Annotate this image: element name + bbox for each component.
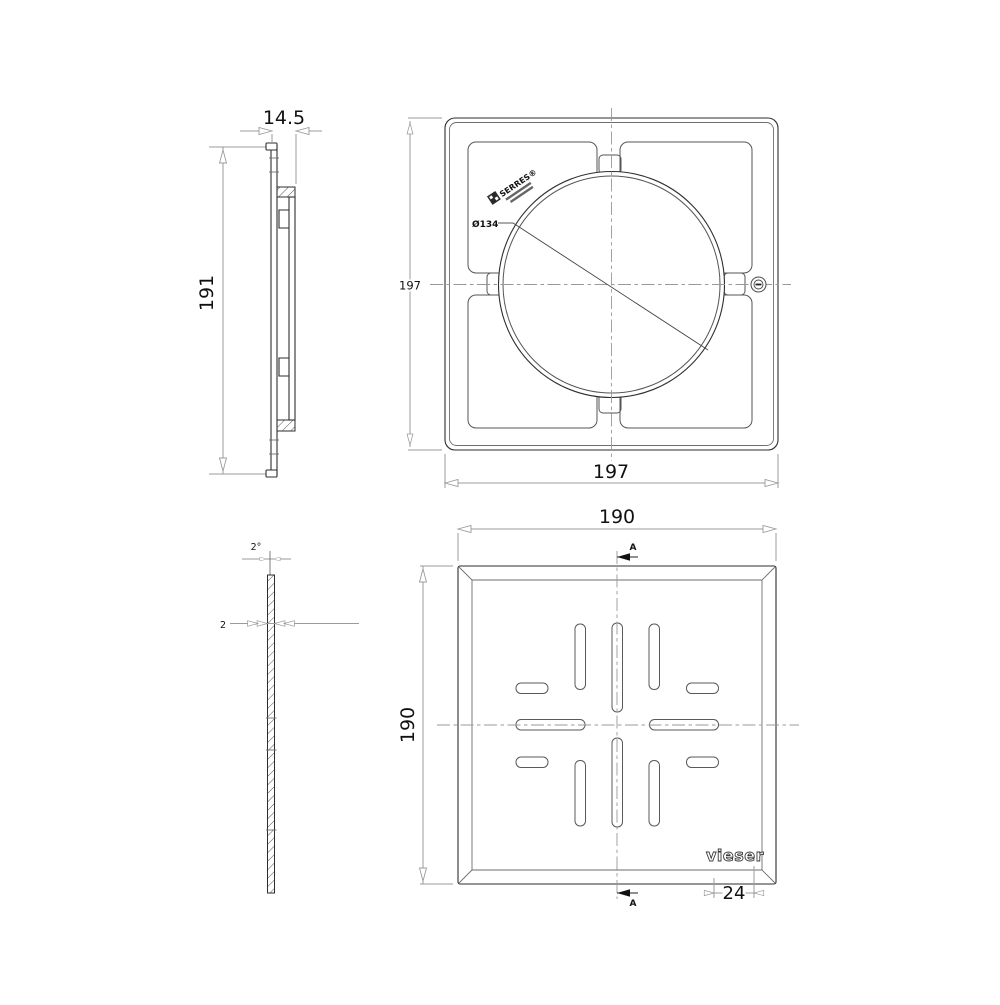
frame-bottom-notch — [279, 358, 289, 376]
frame-front-width-dim-label: 197 — [593, 461, 629, 483]
section-arrow-bottom — [617, 889, 630, 897]
dimension-arrow — [445, 480, 458, 487]
slot-left-top — [575, 624, 586, 690]
dimension-arrow — [284, 621, 294, 627]
thickness-dim-label: 2 — [220, 620, 226, 631]
slot-left-bottom — [575, 761, 586, 827]
dimension-arrow — [260, 557, 267, 561]
dimension-arrow — [458, 526, 471, 533]
slot-right-bottom — [649, 761, 660, 827]
dimension-arrow — [407, 434, 413, 445]
dimension-arrow — [420, 868, 427, 881]
grate-section-view: 2° 2 — [220, 542, 359, 893]
dimension-arrow — [754, 890, 764, 895]
frame-bottom-flange-section — [277, 420, 295, 431]
slot-short-top-left — [516, 683, 548, 694]
drawing-sheet: 191 14.5 197 — [0, 0, 1000, 1000]
dimension-arrow — [220, 458, 227, 471]
logo-width-dim-label: 24 — [723, 883, 746, 904]
dimension-arrow — [704, 890, 714, 895]
grate-height-dim-label: 190 — [397, 707, 419, 743]
dimension-arrow — [765, 480, 778, 487]
frame-top-notch — [279, 210, 289, 228]
frame-side-view: 191 14.5 — [196, 107, 322, 477]
frame-front-view: 197 Ø134 SERRES® — [399, 108, 791, 488]
slot-short-bottom-right — [687, 757, 719, 768]
grate-width-dim-label: 190 — [599, 506, 635, 528]
frame-height-dim-label: 191 — [196, 275, 218, 311]
section-arrow-top — [617, 553, 630, 561]
dimension-arrow — [273, 557, 280, 561]
frame-top-flange-section — [277, 187, 295, 197]
vieser-logo: vieser — [706, 846, 764, 865]
slot-short-bottom-left — [516, 757, 548, 768]
slot-short-top-right — [687, 683, 719, 694]
dimension-arrow — [420, 569, 427, 582]
dimension-arrow — [220, 150, 227, 163]
slot-right-top — [649, 624, 660, 690]
dimension-arrow — [248, 621, 258, 627]
diameter-label: Ø134 — [472, 219, 498, 230]
section-label-top: A — [630, 543, 637, 553]
frame-front-height-dim-label: 197 — [399, 279, 421, 293]
frame-bottom-lip — [266, 470, 277, 477]
grate-front-view: 190 190 A A — [397, 506, 799, 909]
frame-top-lip — [266, 143, 277, 150]
frame-face-plate — [271, 145, 277, 475]
section-label-bottom: A — [630, 899, 637, 909]
frame-wall — [289, 197, 295, 420]
grate-plate-section — [268, 575, 275, 893]
frame-depth-dim-label: 14.5 — [263, 107, 305, 129]
dimension-arrow — [763, 526, 776, 533]
technical-drawing: 191 14.5 197 — [0, 0, 1000, 1000]
draft-angle-label: 2° — [251, 542, 262, 553]
dimension-arrow — [407, 123, 413, 134]
